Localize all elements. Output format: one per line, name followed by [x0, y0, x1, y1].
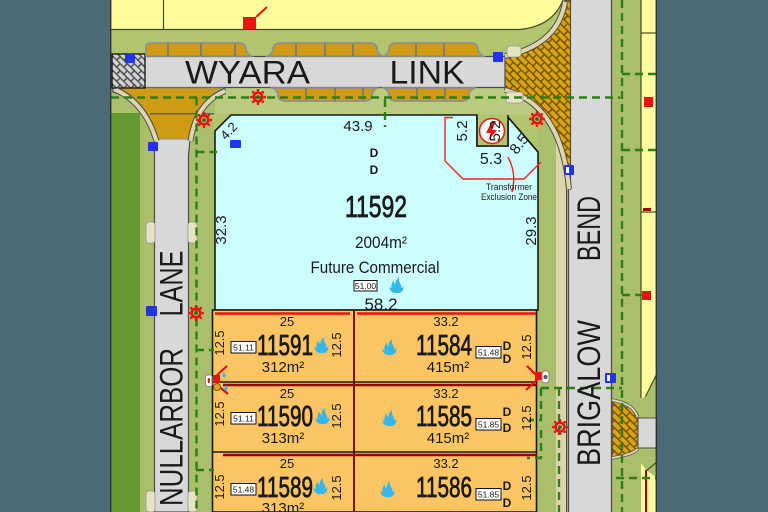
svg-text:12.5: 12.5 [519, 405, 534, 430]
svg-text:Future Commercial: Future Commercial [311, 259, 440, 277]
svg-text:D: D [370, 163, 379, 177]
svg-text:51.00: 51.00 [355, 281, 377, 291]
svg-text:33.2: 33.2 [433, 386, 458, 401]
svg-text:58.2: 58.2 [364, 295, 397, 314]
svg-text:25: 25 [280, 386, 294, 401]
svg-text:312m²: 312m² [262, 359, 305, 376]
svg-text:D: D [503, 421, 512, 435]
svg-text:12.5: 12.5 [329, 475, 344, 500]
svg-text:LINK: LINK [390, 55, 465, 91]
svg-text:12.5: 12.5 [212, 401, 227, 426]
svg-text:11592: 11592 [345, 189, 407, 224]
svg-text:51.11: 51.11 [233, 343, 254, 353]
svg-text:313m²: 313m² [262, 430, 305, 447]
svg-text:Transformer: Transformer [486, 182, 532, 192]
svg-text:D: D [503, 479, 512, 493]
svg-text:D: D [503, 496, 512, 510]
svg-text:D: D [503, 405, 512, 419]
svg-text:11590: 11590 [257, 401, 313, 433]
svg-text:5.3: 5.3 [480, 151, 502, 168]
svg-text:BRIGALOW: BRIGALOW [571, 319, 607, 466]
svg-text:D: D [503, 352, 512, 366]
svg-text:25: 25 [280, 314, 294, 329]
svg-text:51.85: 51.85 [478, 490, 500, 500]
svg-text:12.5: 12.5 [212, 474, 227, 499]
svg-text:33.2: 33.2 [433, 314, 458, 329]
svg-text:313m²: 313m² [262, 500, 305, 512]
svg-text:43.9: 43.9 [343, 118, 372, 135]
svg-text:33.2: 33.2 [433, 456, 458, 471]
svg-text:12.5: 12.5 [519, 475, 534, 500]
svg-text:BEND: BEND [571, 196, 607, 261]
svg-text:25: 25 [280, 456, 294, 471]
svg-text:5.2: 5.2 [454, 121, 471, 142]
svg-text:415m²: 415m² [427, 430, 470, 447]
svg-text:12.5: 12.5 [329, 332, 344, 357]
svg-text:29.3: 29.3 [523, 216, 540, 245]
svg-text:51.48: 51.48 [478, 348, 500, 358]
svg-text:11584: 11584 [416, 330, 472, 362]
svg-text:51.11: 51.11 [233, 414, 254, 424]
svg-text:32.3: 32.3 [213, 215, 230, 244]
svg-text:D: D [503, 339, 512, 353]
svg-text:WYARA: WYARA [185, 55, 311, 91]
svg-text:12.5: 12.5 [329, 403, 344, 428]
svg-text:12.5: 12.5 [519, 334, 534, 359]
svg-text:11585: 11585 [416, 401, 472, 433]
svg-text:11591: 11591 [257, 330, 313, 362]
svg-text:Exclusion Zone: Exclusion Zone [481, 192, 537, 202]
svg-text:2004m²: 2004m² [355, 233, 407, 252]
svg-text:LANE: LANE [154, 251, 190, 317]
svg-text:D: D [370, 146, 379, 160]
svg-text:NULLARBOR: NULLARBOR [154, 348, 190, 506]
svg-text:5.2: 5.2 [487, 121, 504, 142]
svg-text:51.85: 51.85 [478, 420, 500, 430]
svg-text:12.5: 12.5 [212, 330, 227, 355]
svg-text:11586: 11586 [416, 472, 472, 504]
svg-text:415m²: 415m² [427, 359, 470, 376]
svg-text:51.48: 51.48 [233, 485, 255, 495]
